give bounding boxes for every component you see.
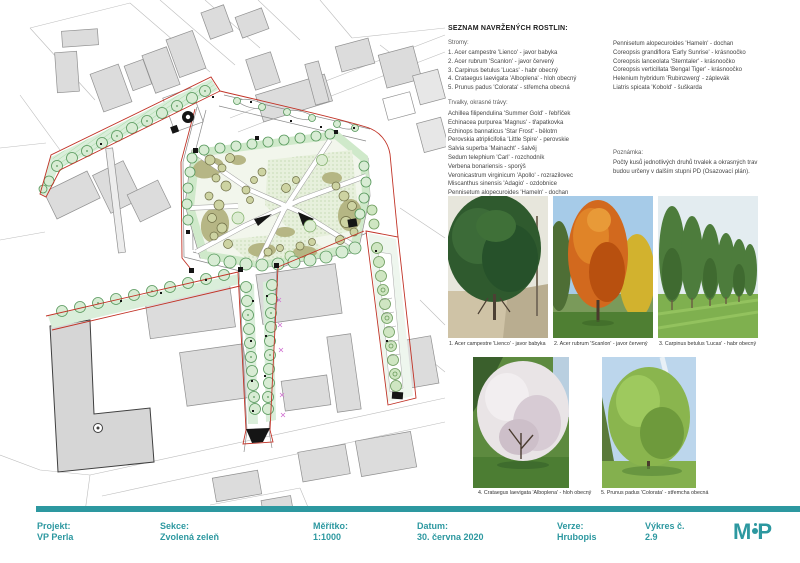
site-plan-map	[0, 0, 446, 512]
perennial-item: Perovskia atriplicifolia 'Little Spire' …	[448, 136, 573, 145]
footer-field-verze: Verze: Hrubopis	[557, 521, 597, 543]
perennial-item: Veronicastrum virginicum 'Apollo' - rozr…	[448, 172, 573, 181]
l-building	[50, 320, 154, 472]
perennials-heading: Trvalky, okrasné trávy:	[448, 100, 508, 106]
tree-item: 2. Acer rubrum 'Scanlon' - javor červený	[448, 58, 576, 67]
note-line: budou určeny v dalším stupni PD (Osazova…	[613, 168, 757, 177]
perennials-col1: Achillea filipendulina 'Summer Gold' - ř…	[448, 110, 573, 198]
footer-field-projekt: Projekt: VP Perla	[37, 521, 73, 543]
mop-logo: M P	[733, 520, 771, 544]
footer-field-meritko: Měřítko: 1:1000	[313, 521, 348, 543]
perennial-item: Verbena bonariensis - sporýš	[448, 163, 573, 172]
perennial-item: Salvia superba 'Mainacht' - šalvěj	[448, 145, 573, 154]
note-line: Počty kusů jednotlivých druhů trvalek a …	[613, 159, 757, 168]
field-label: Výkres č.	[645, 521, 685, 532]
photo-crataegus-laevigata	[473, 357, 569, 488]
perennial-item: Coreopsis verticillata 'Bengal Tiger' - …	[613, 66, 746, 75]
field-label: Verze:	[557, 521, 597, 532]
field-label: Měřítko:	[313, 521, 348, 532]
field-value: Zvolená zeleň	[160, 532, 219, 543]
tree-item: 1. Acer campestre 'Lienco' - javor babyk…	[448, 49, 576, 58]
tree-item: 3. Carpinus betulus 'Lucas' - habr obecn…	[448, 67, 576, 76]
field-value: VP Perla	[37, 532, 73, 543]
photo-carpinus-betulus	[658, 196, 758, 338]
field-value: 30. června 2020	[417, 532, 484, 543]
perennial-item: Sedum telephium 'Carl' - rozchodník	[448, 154, 573, 163]
perennial-item: Achillea filipendulina 'Summer Gold' - ř…	[448, 110, 573, 119]
field-value: Hrubopis	[557, 532, 597, 543]
perennial-item: Echinops bannaticus 'Star Frost' - bělot…	[448, 128, 573, 137]
field-value: 1:1000	[313, 532, 348, 543]
field-label: Datum:	[417, 521, 484, 532]
perennial-item: Liatris spicata 'Kobold' - šuškarda	[613, 84, 746, 93]
field-label: Sekce:	[160, 521, 219, 532]
photo-caption: 5. Prunus padus 'Colorata' - střemcha ob…	[601, 490, 708, 496]
photo-caption: 2. Acer rubrum 'Scanlon' - javor červený	[554, 341, 648, 347]
field-label: Projekt:	[37, 521, 73, 532]
tree-item: 5. Prunus padus 'Colorata' - střemcha ob…	[448, 84, 576, 93]
note-text: Počty kusů jednotlivých druhů trvalek a …	[613, 159, 757, 177]
trees-list: 1. Acer campestre 'Lienco' - javor babyk…	[448, 49, 576, 93]
footer-field-datum: Datum: 30. června 2020	[417, 521, 484, 543]
photo-caption: 4. Crataegus laevigata 'Alboplena' - hlo…	[478, 490, 591, 496]
perennial-item: Coreopsis grandiflora 'Early Sunrise' - …	[613, 49, 746, 58]
perennials-col2: Pennisetum alopecuroides 'Hameln' - doch…	[613, 40, 746, 93]
logo-letter-p: P	[757, 520, 771, 544]
plant-list-title: SEZNAM NAVRŽENÝCH ROSTLIN:	[448, 25, 568, 32]
photo-caption: 3. Carpinus betulus 'Lucas' - habr obecn…	[659, 341, 756, 347]
logo-letter-m: M	[733, 520, 750, 544]
photo-acer-campestre	[448, 196, 548, 338]
perennial-item: Miscanthus sinensis 'Adagio' - ozdobnice	[448, 180, 573, 189]
footer-accent-band	[36, 506, 800, 512]
photo-caption: 1. Acer campestre 'Lienco' - javor babyk…	[449, 341, 546, 347]
perennial-item: Coreopsis lanceolata 'Sterntaler' - krás…	[613, 58, 746, 67]
perennial-item: Pennisetum alopecuroides 'Hameln' - doch…	[613, 40, 746, 49]
perennial-item: Echinacea purpurea 'Magnus' - třapatkovk…	[448, 119, 573, 128]
footer-field-sekce: Sekce: Zvolená zeleň	[160, 521, 219, 543]
field-value: 2.9	[645, 532, 685, 543]
footer-field-vykres: Výkres č. 2.9	[645, 521, 685, 543]
perennial-item: Helenium hybridum 'Rubinzwerg' - záplevá…	[613, 75, 746, 84]
tree-item: 4. Crataegus laevigata 'Alboplena' - hlo…	[448, 75, 576, 84]
note-heading: Poznámka:	[613, 150, 643, 156]
trees-heading: Stromy:	[448, 40, 469, 46]
photo-acer-rubrum	[553, 196, 653, 338]
photo-prunus-padus	[602, 357, 696, 488]
